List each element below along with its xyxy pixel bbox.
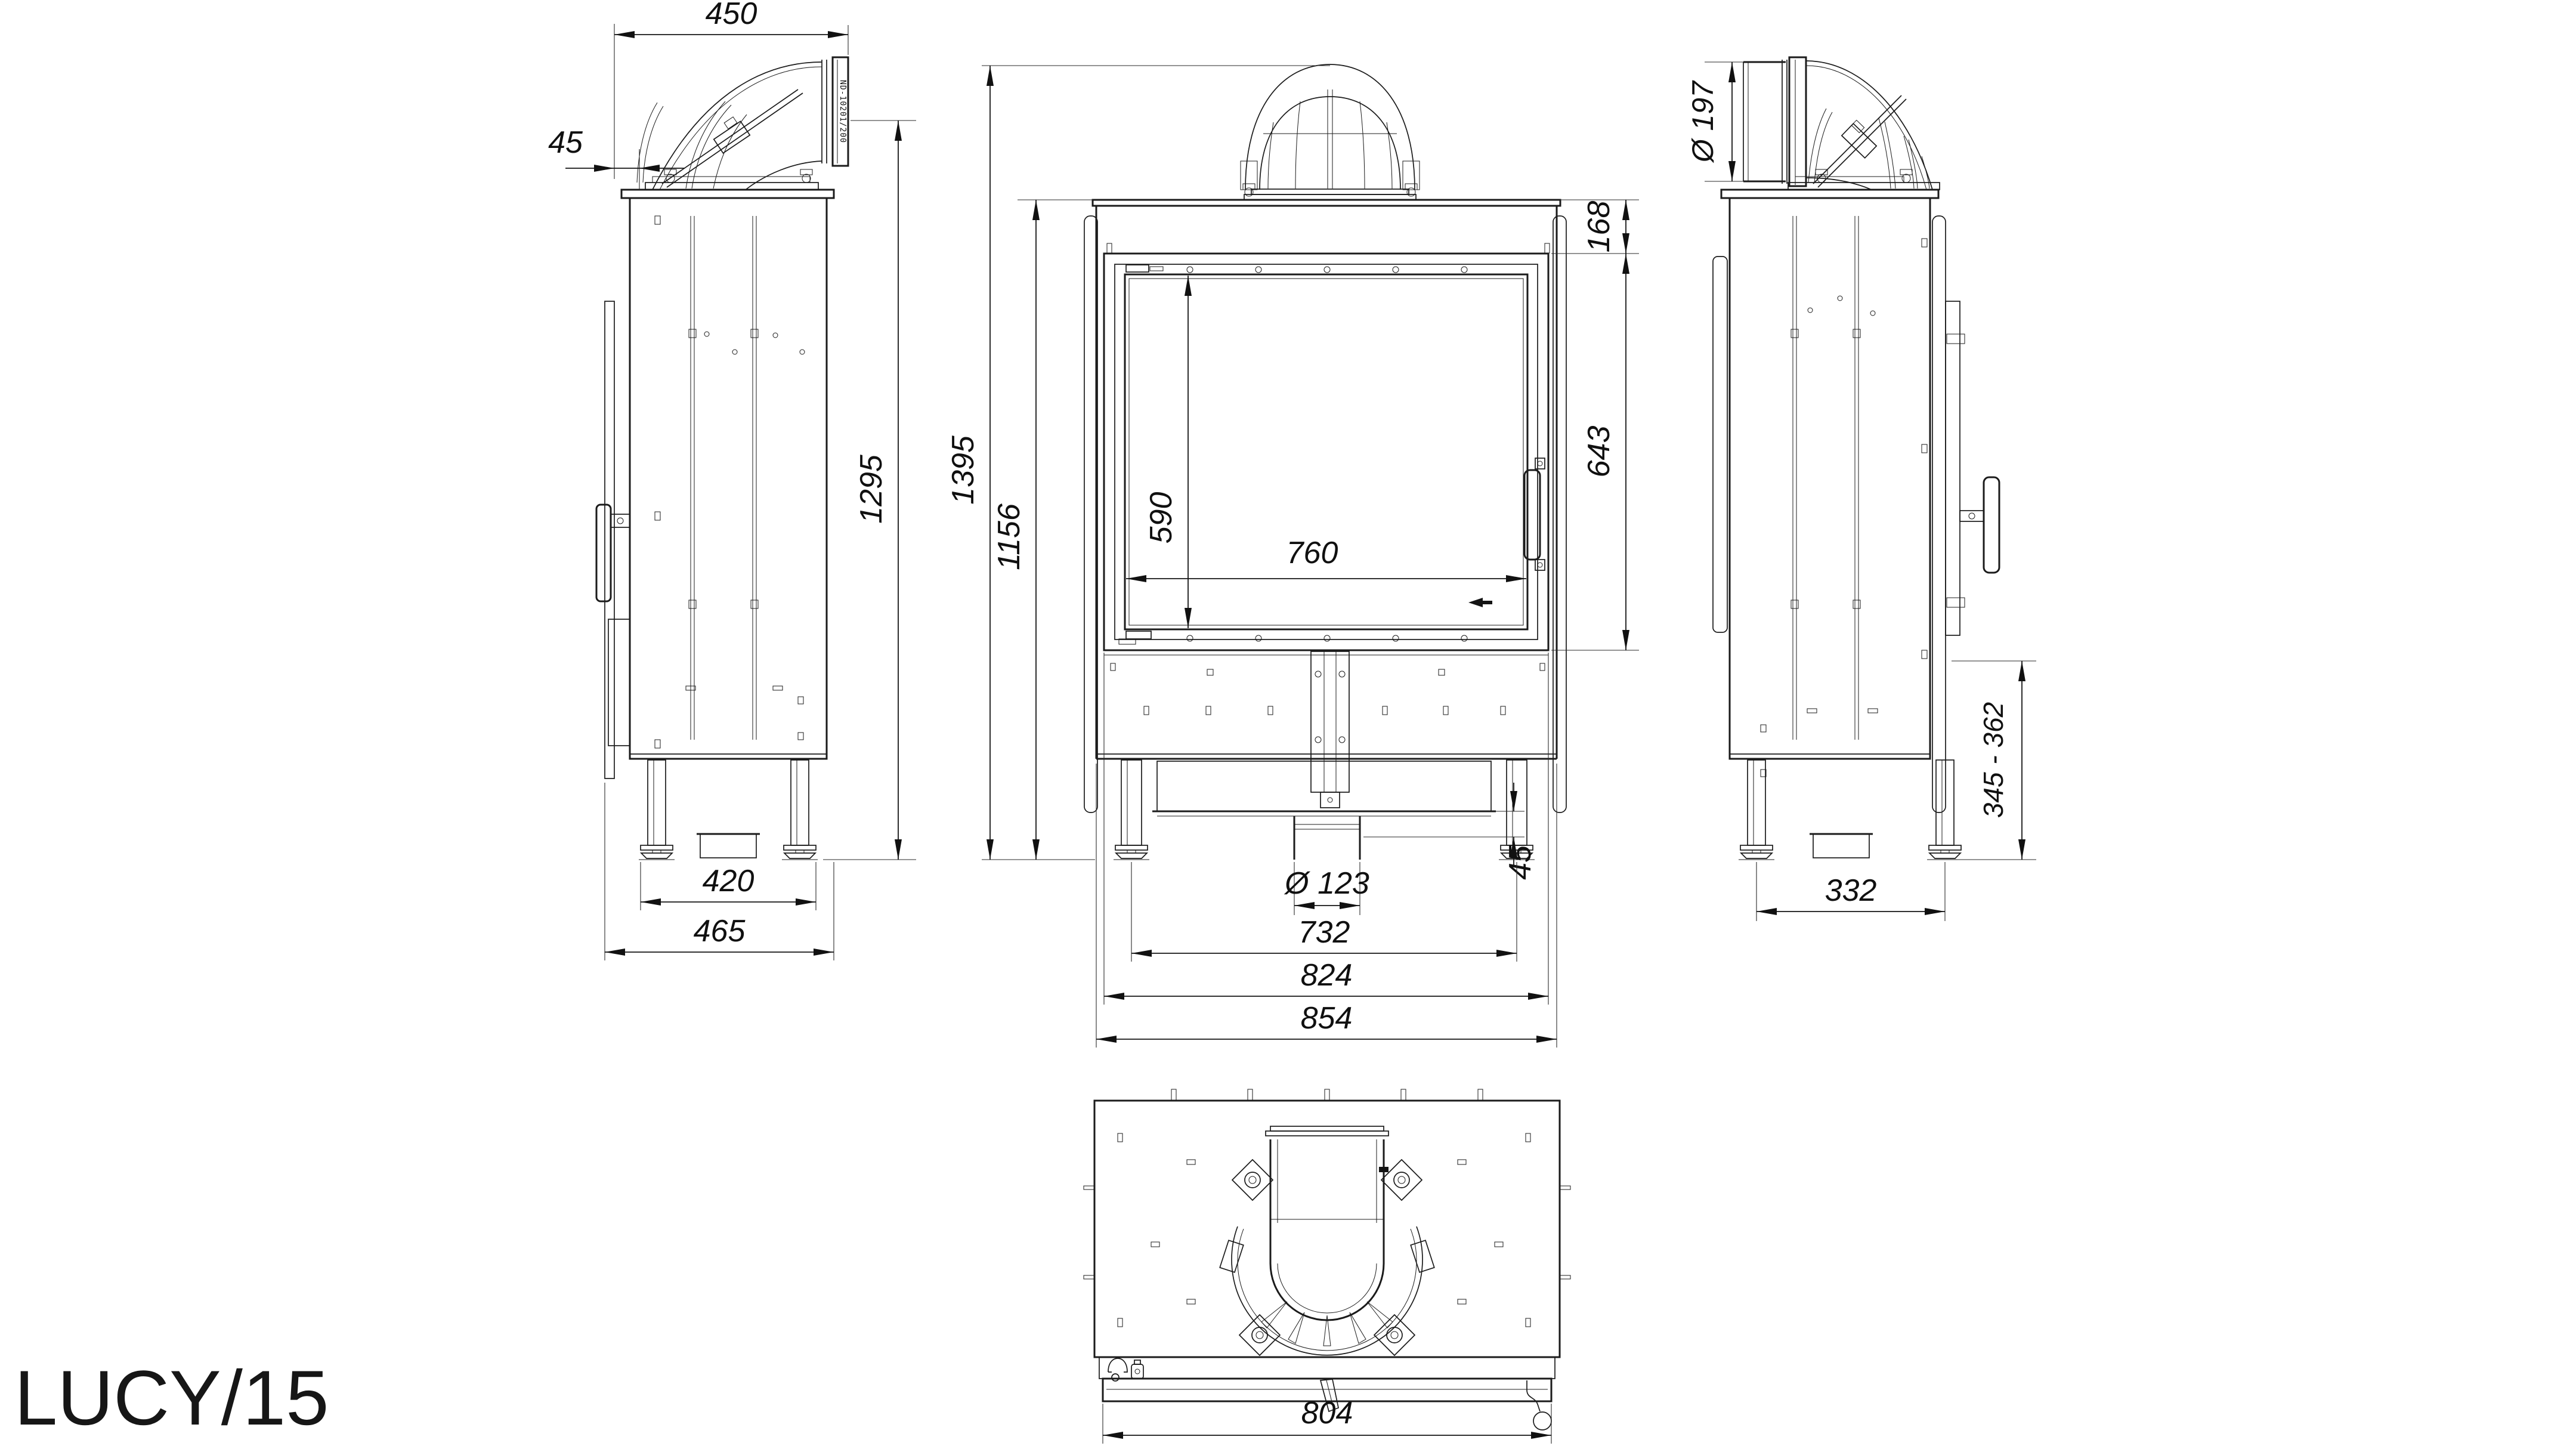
flue-marking-label: ND-10201/200 (838, 80, 847, 143)
dim-45-front-label: 45 (1503, 845, 1538, 880)
dim-590-label: 590 (1144, 492, 1179, 544)
fireplace-dimension-drawing: ND-10201/200 450 45 1295 (0, 0, 2576, 1449)
dim-168-label: 168 (1582, 201, 1616, 253)
dim-804-label: 804 (1301, 1396, 1353, 1431)
dim-760-label: 760 (1287, 536, 1338, 570)
dim-732-label: 732 (1298, 915, 1350, 950)
model-title: LUCY/15 (14, 1354, 329, 1441)
dim-420-label: 420 (703, 864, 754, 898)
background (0, 0, 2576, 1449)
dim-197-label: Ø 197 (1686, 80, 1720, 163)
dim-45-label: 45 (548, 125, 583, 160)
technical-drawing-page: ND-10201/200 450 45 1295 (0, 0, 2576, 1449)
dim-345-362-label: 345 - 362 (1978, 702, 2009, 818)
dim-643-label: 643 (1582, 426, 1616, 478)
dim-824-label: 824 (1301, 958, 1353, 993)
dim-123-label: Ø 123 (1284, 866, 1369, 901)
dim-465-label: 465 (694, 914, 746, 949)
dim-1156-label: 1156 (992, 503, 1026, 570)
dim-332-label: 332 (1825, 873, 1877, 908)
dim-1395-label: 1395 (946, 435, 981, 505)
dim-1295-label: 1295 (854, 454, 889, 524)
dim-450-label: 450 (706, 0, 757, 31)
dim-854-label: 854 (1301, 1001, 1353, 1036)
